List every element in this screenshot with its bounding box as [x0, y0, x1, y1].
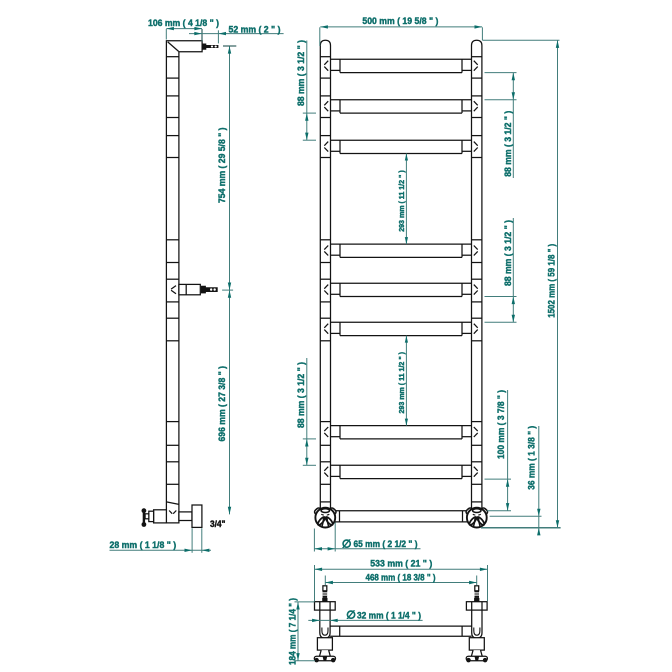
svg-text:∅: ∅ — [346, 610, 356, 622]
svg-text:32 mm ( 1 1/4 " ): 32 mm ( 1 1/4 " ) — [357, 610, 421, 621]
svg-text:293 mm ( 11 1/2 " ): 293 mm ( 11 1/2 " ) — [397, 351, 406, 413]
svg-text:88 mm ( 3 1/2 " ): 88 mm ( 3 1/2 " ) — [296, 40, 307, 106]
svg-text:28 mm ( 1 1/8 " ): 28 mm ( 1 1/8 " ) — [110, 540, 177, 551]
svg-text:52 mm ( 2 " ): 52 mm ( 2 " ) — [229, 25, 281, 36]
svg-text:1502 mm ( 59 1/8 " ): 1502 mm ( 59 1/8 " ) — [546, 244, 557, 318]
svg-text:∅: ∅ — [342, 538, 352, 550]
svg-text:36 mm ( 1 3/8 " ): 36 mm ( 1 3/8 " ) — [527, 426, 538, 490]
svg-text:293 mm ( 11 1/2 " ): 293 mm ( 11 1/2 " ) — [397, 170, 406, 232]
svg-text:696 mm ( 27 3/8 " ): 696 mm ( 27 3/8 " ) — [217, 366, 228, 442]
svg-text:754 mm ( 29 5/8 " ): 754 mm ( 29 5/8 " ) — [217, 128, 228, 204]
svg-text:3/4": 3/4" — [210, 519, 226, 530]
svg-text:184 mm ( 7 1/4 " ): 184 mm ( 7 1/4 " ) — [287, 598, 298, 665]
svg-text:88 mm ( 3 1/2 " ): 88 mm ( 3 1/2 " ) — [503, 111, 514, 177]
svg-text:65 mm ( 2 1/2 " ): 65 mm ( 2 1/2 " ) — [354, 539, 418, 550]
svg-text:500 mm ( 19 5/8 " ): 500 mm ( 19 5/8 " ) — [362, 16, 438, 27]
svg-text:88 mm ( 3 1/2 " ): 88 mm ( 3 1/2 " ) — [503, 220, 514, 286]
svg-text:88 mm ( 3 1/2 " ): 88 mm ( 3 1/2 " ) — [296, 362, 307, 428]
svg-text:468 mm ( 18 3/8 " ): 468 mm ( 18 3/8 " ) — [366, 573, 436, 584]
svg-text:100 mm ( 3 7/8 " ): 100 mm ( 3 7/8 " ) — [496, 390, 507, 459]
svg-text:533 mm ( 21 " ): 533 mm ( 21 " ) — [370, 559, 432, 570]
svg-text:106 mm ( 4 1/8 " ): 106 mm ( 4 1/8 " ) — [148, 18, 219, 29]
